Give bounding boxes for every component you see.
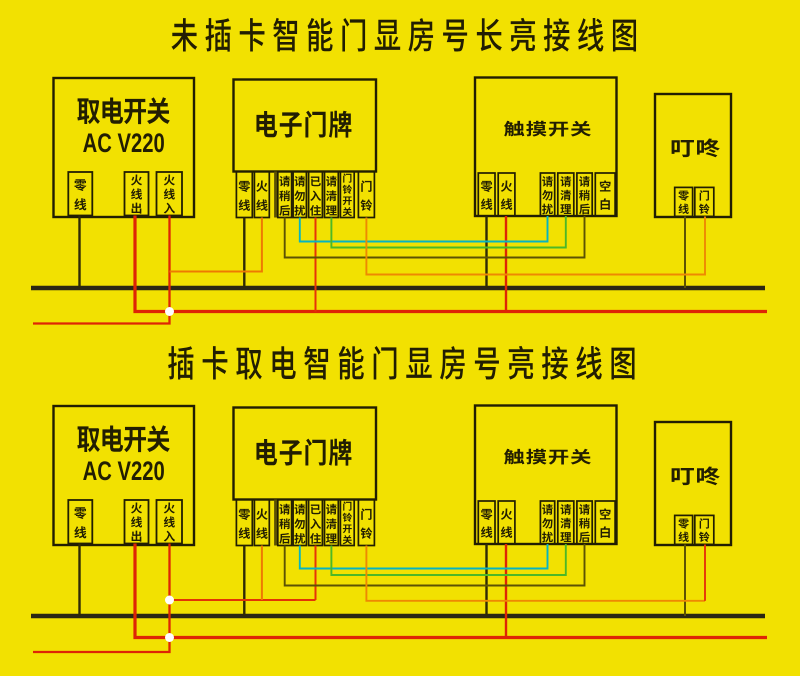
svg-text:AC V220: AC V220 [83,456,165,487]
svg-text:AC V220: AC V220 [83,128,165,159]
